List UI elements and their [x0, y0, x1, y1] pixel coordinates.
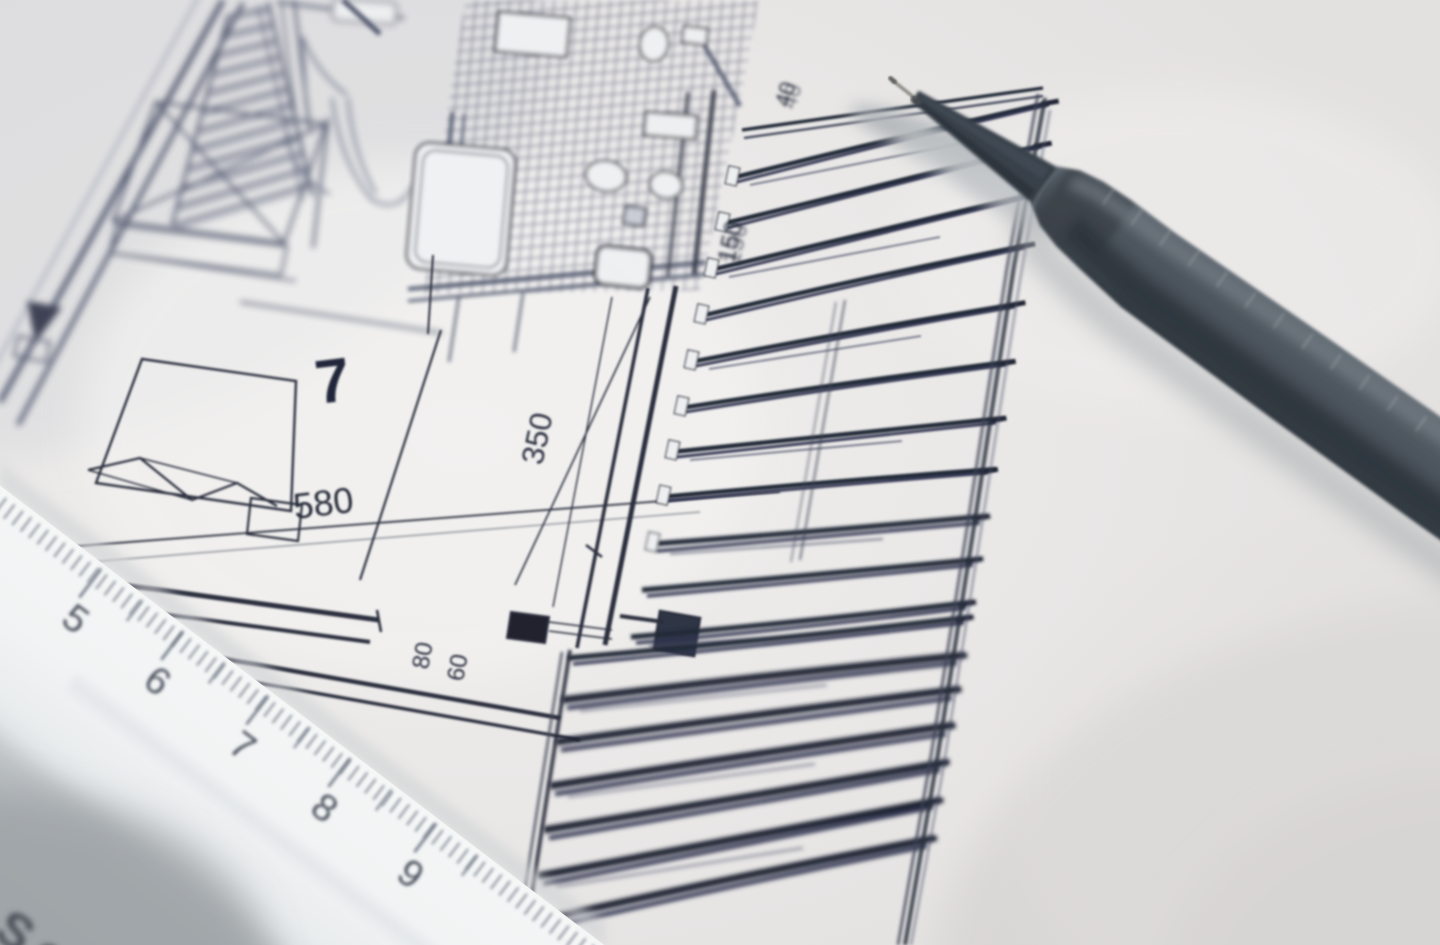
svg-text:580: 580	[291, 479, 356, 527]
svg-text:60: 60	[442, 652, 473, 683]
svg-text:80: 80	[407, 640, 438, 671]
